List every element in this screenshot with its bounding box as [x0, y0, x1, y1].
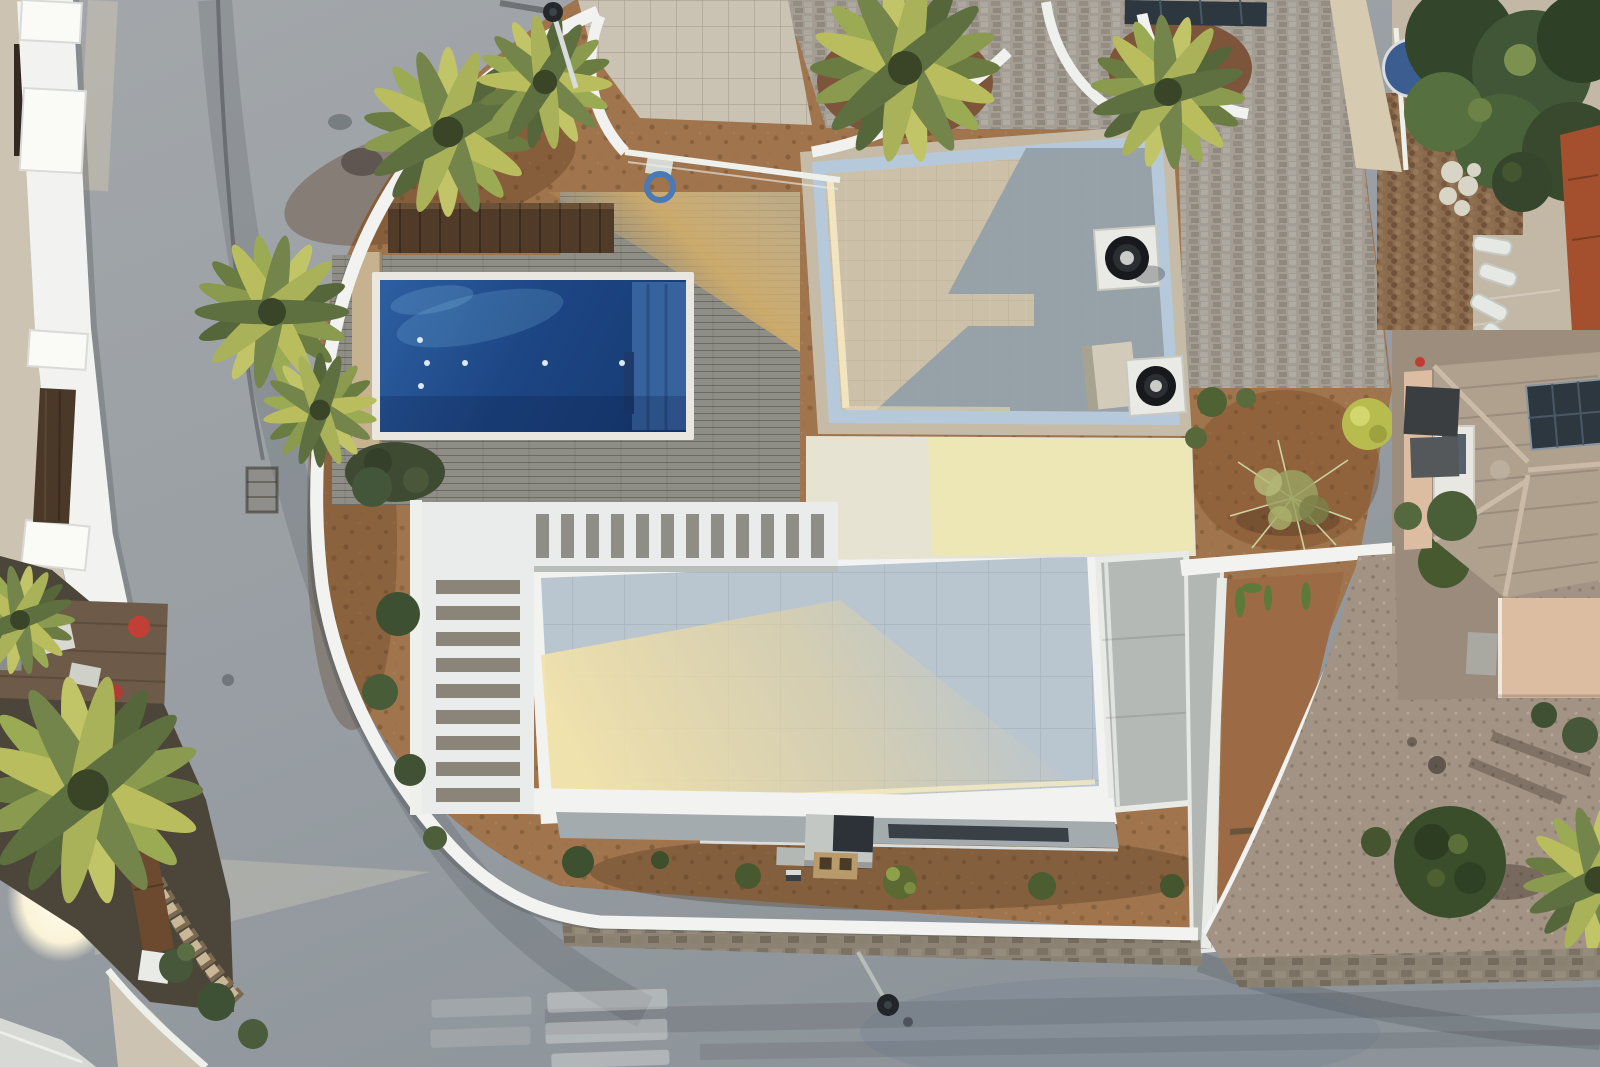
upper-roof: [800, 124, 1192, 436]
doorway: [833, 815, 874, 852]
sunlit-courtyard: [928, 438, 1194, 556]
round-bush: [1492, 152, 1552, 212]
peach-flat-roof: [1498, 598, 1600, 698]
roof-vent-2: [1126, 356, 1186, 416]
swimming-pool: [372, 272, 694, 440]
main-roof: [527, 542, 1113, 824]
rooftop-equipment: [1403, 386, 1459, 437]
roof-vent-1: [1094, 225, 1166, 290]
wood-pallet: [813, 852, 858, 880]
solar-panel: [1526, 379, 1600, 450]
manhole: [247, 468, 277, 512]
brown-gate: [33, 388, 76, 524]
yellow-bush: [1342, 398, 1394, 450]
aerial-photo: [0, 0, 1600, 1067]
terracotta-house: [1394, 352, 1600, 700]
